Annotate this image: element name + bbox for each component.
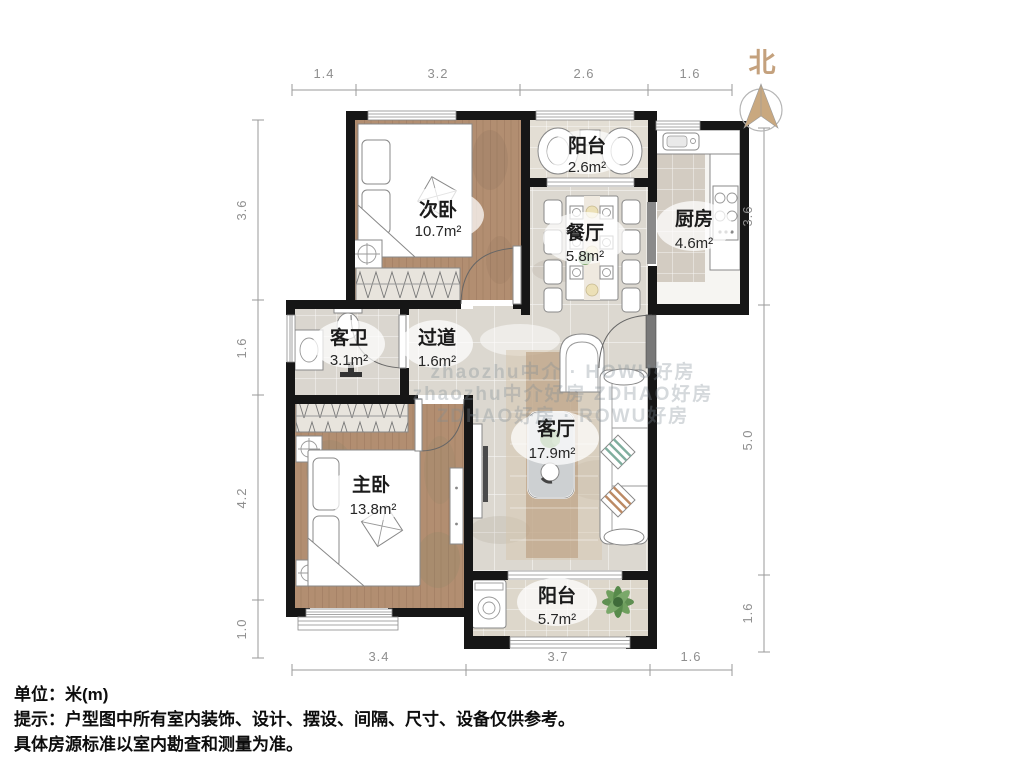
room-name: 阳台 [568,134,606,157]
dim-label: 1.6 [234,337,249,358]
disclaimer-line-1: 提示：户型图中所有室内装饰、设计、摆设、间隔、尺寸、设备仅供参考。 [14,707,575,732]
room-name: 厨房 [675,207,713,230]
room-area: 2.6m² [568,159,606,176]
north-indicator: 北 [740,48,782,131]
dim-label: 1.6 [740,602,755,623]
room-name: 过道 [418,326,456,349]
dim-label: 1.4 [313,66,334,81]
dim-label: 3.6 [740,205,755,226]
dim-label: 3.2 [427,66,448,81]
room-area: 4.6m² [675,235,713,252]
room-label-master-bedroom: 主卧 13.8m² [327,467,415,521]
dimension-right: 3.6 5.0 1.6 [740,128,770,652]
unit-note: 单位：米(m) [14,682,575,707]
dimension-top: 1.4 3.2 2.6 1.6 [292,66,732,96]
room-name: 客厅 [537,417,575,440]
dimension-bottom: 3.4 3.7 1.6 [292,649,732,676]
footer-notes: 单位：米(m) 提示：户型图中所有室内装饰、设计、摆设、间隔、尺寸、设备仅供参考… [14,682,575,757]
room-area: 1.6m² [418,353,456,370]
room-area: 5.7m² [538,611,576,628]
dim-label: 1.6 [679,66,700,81]
room-area: 13.8m² [350,501,397,518]
room-name: 主卧 [352,474,390,496]
room-area: 5.8m² [566,248,604,265]
room-label-secondary-bedroom: 次卧 10.7m² [392,188,484,242]
dim-label: 2.6 [573,66,594,81]
dim-label: 5.0 [740,429,755,450]
dim-label: 4.2 [234,487,249,508]
room-area: 10.7m² [415,223,462,240]
room-name: 次卧 [419,198,457,221]
window-icon [536,111,634,120]
plant-icon [602,586,634,618]
chair-icon [544,260,562,284]
window-icon [510,637,630,648]
disclaimer-line-2: 具体房源标准以室内勘查和测量为准。 [14,732,575,757]
chair-icon [622,200,640,224]
room-area: 17.9m² [529,445,576,462]
armchair-icon [560,334,604,392]
chair-icon [622,260,640,284]
room-area: 3.1m² [330,352,368,369]
window-icon [368,111,456,120]
room-name: 客卫 [330,326,368,349]
tv-icon [483,446,488,502]
washing-machine-icon [472,580,506,628]
dim-label: 3.7 [547,649,568,664]
chair-icon [544,288,562,312]
room-name: 阳台 [538,584,576,607]
room-name: 餐厅 [566,221,604,244]
dim-label: 3.4 [368,649,389,664]
window-icon [656,121,700,130]
window-icon [287,315,295,362]
floorplan-svg: 次卧 10.7m² 阳台 2.6m² 餐厅 5.8m² 厨房 4.6m² 客卫 … [0,0,1024,768]
dimension-left: 3.6 1.6 4.2 1.0 [234,120,264,658]
dim-label: 3.6 [234,199,249,220]
floorplan-image: 次卧 10.7m² 阳台 2.6m² 餐厅 5.8m² 厨房 4.6m² 客卫 … [0,0,1024,768]
chair-icon [622,288,640,312]
pillow-icon [362,140,390,184]
dim-label: 1.6 [680,649,701,664]
window-icon [298,609,398,630]
dresser-icon [450,468,463,544]
sliding-door-icon [647,202,656,264]
room-label-living: 客厅 17.9m² [511,411,599,465]
north-label: 北 [749,48,776,78]
dim-label: 1.0 [234,618,249,639]
